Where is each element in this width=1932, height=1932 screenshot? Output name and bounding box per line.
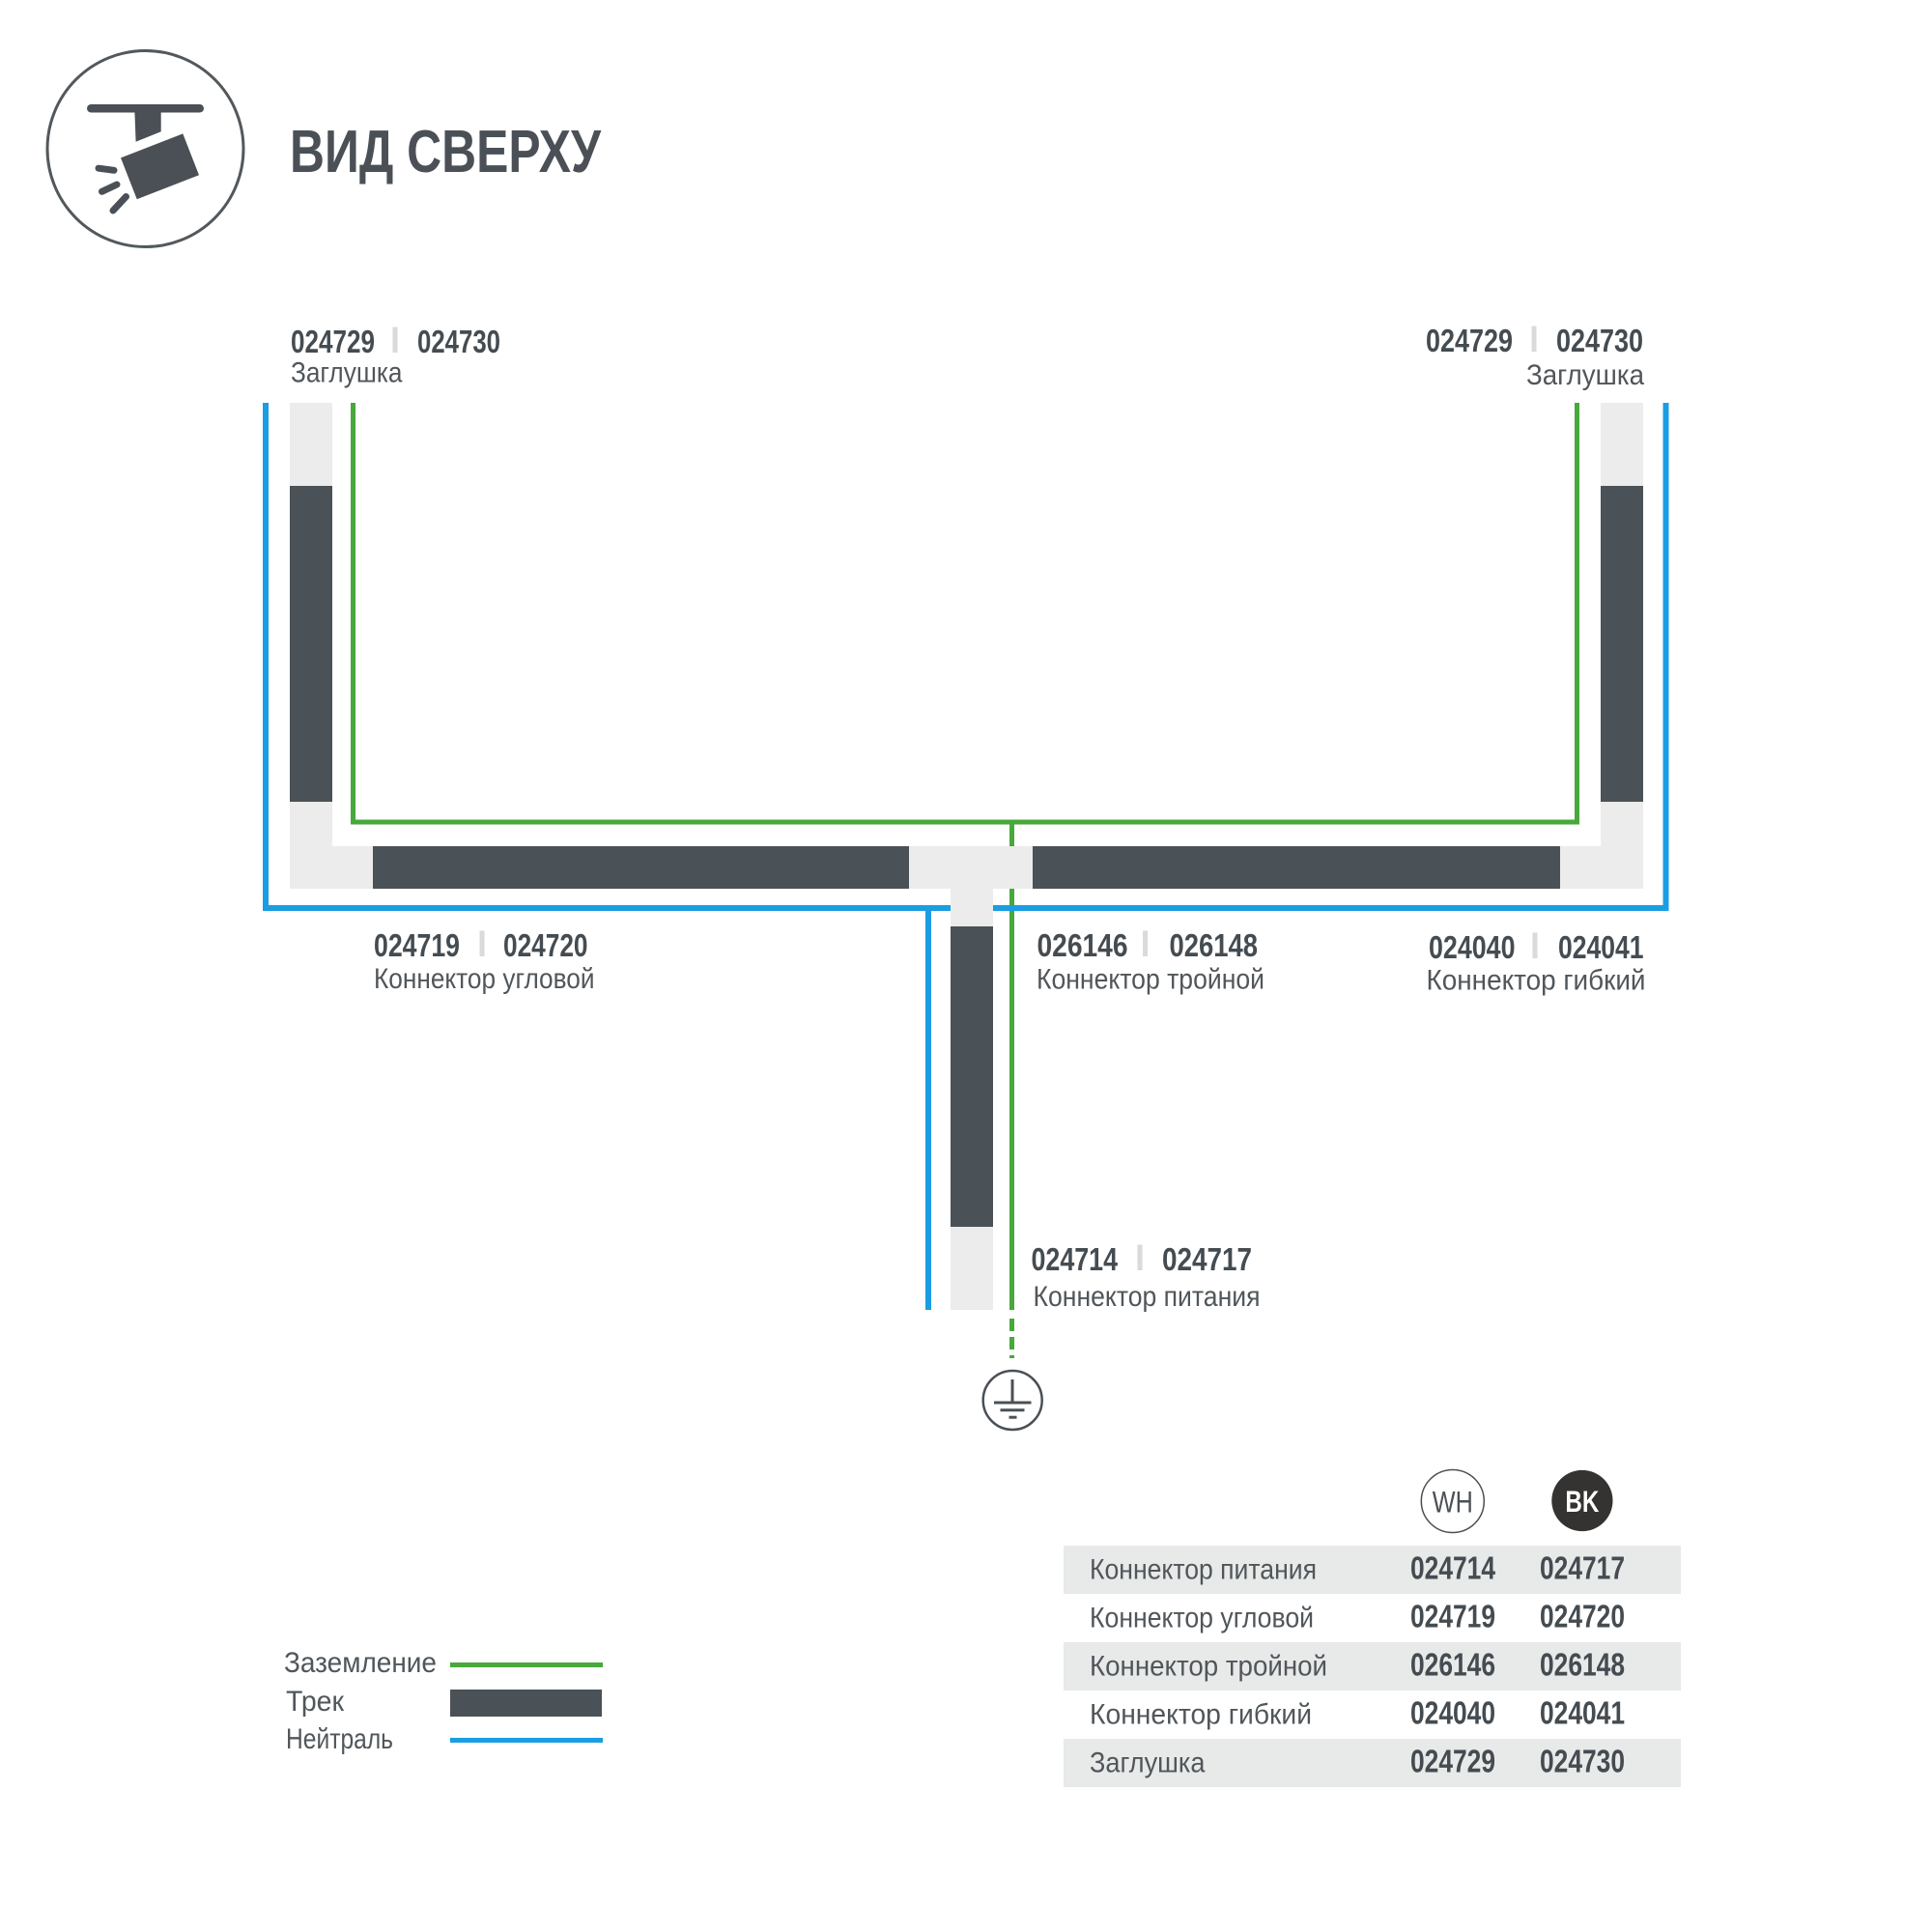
svg-text:024729: 024729 [1410, 1744, 1495, 1779]
svg-text:Коннектор питания: Коннектор питания [1090, 1554, 1317, 1586]
svg-text:Заземление: Заземление [284, 1647, 437, 1679]
svg-text:BK: BK [1565, 1484, 1599, 1519]
svg-text:Заглушка: Заглушка [291, 357, 403, 389]
svg-text:024717: 024717 [1540, 1550, 1625, 1586]
svg-text:024041: 024041 [1558, 929, 1644, 965]
svg-text:024040: 024040 [1429, 929, 1516, 965]
svg-text:Коннектор угловой: Коннектор угловой [374, 963, 595, 995]
svg-text:024719: 024719 [1410, 1599, 1495, 1634]
svg-text:024714: 024714 [1410, 1550, 1496, 1586]
svg-text:Заглушка: Заглушка [1526, 359, 1644, 391]
svg-text:026148: 026148 [1540, 1647, 1625, 1683]
svg-text:Коннектор гибкий: Коннектор гибкий [1427, 965, 1646, 997]
svg-text:024717: 024717 [1162, 1241, 1252, 1277]
svg-text:024719: 024719 [374, 927, 460, 963]
svg-text:026148: 026148 [1170, 927, 1259, 963]
svg-text:Коннектор угловой: Коннектор угловой [1090, 1603, 1314, 1634]
svg-text:Заглушка: Заглушка [1090, 1747, 1206, 1779]
svg-text:026146: 026146 [1410, 1647, 1495, 1683]
svg-text:024720: 024720 [1540, 1599, 1625, 1634]
svg-text:Коннектор тройной: Коннектор тройной [1037, 964, 1264, 996]
svg-text:Коннектор питания: Коннектор питания [1034, 1281, 1261, 1313]
svg-text:WH: WH [1433, 1485, 1473, 1520]
svg-text:024730: 024730 [1556, 323, 1643, 358]
svg-text:024714: 024714 [1032, 1241, 1119, 1277]
svg-text:Коннектор гибкий: Коннектор гибкий [1090, 1699, 1312, 1731]
svg-text:024041: 024041 [1540, 1695, 1625, 1731]
svg-text:ВИД СВЕРХУ: ВИД СВЕРХУ [290, 119, 602, 185]
svg-text:026146: 026146 [1037, 927, 1128, 963]
svg-text:024729: 024729 [1426, 323, 1513, 358]
svg-text:Трек: Трек [286, 1686, 345, 1718]
svg-text:Нейтраль: Нейтраль [286, 1723, 393, 1755]
svg-text:024040: 024040 [1410, 1695, 1495, 1731]
svg-text:024730: 024730 [1540, 1744, 1625, 1779]
svg-text:Коннектор тройной: Коннектор тройной [1090, 1651, 1327, 1683]
svg-text:024729: 024729 [291, 324, 375, 359]
svg-text:024720: 024720 [503, 927, 588, 963]
svg-text:024730: 024730 [417, 324, 500, 359]
